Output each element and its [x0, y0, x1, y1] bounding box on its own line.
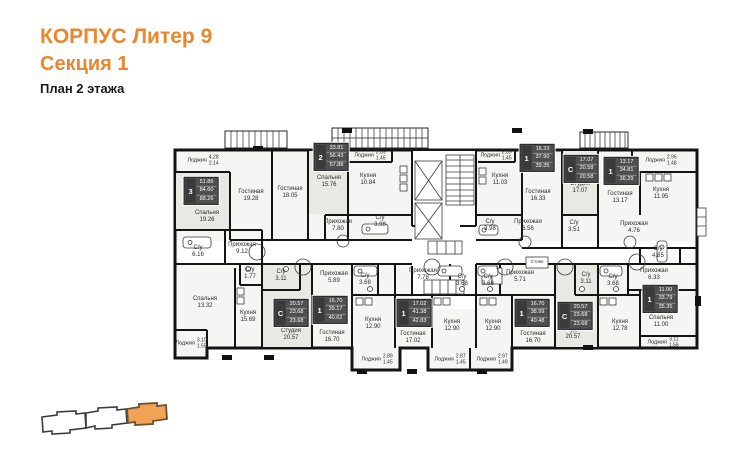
keyplan-section-highlighted	[127, 403, 167, 425]
floor-plan-drawing	[0, 0, 740, 472]
entrance-stairs-icon	[225, 128, 628, 148]
keyplan-section-1	[42, 411, 86, 434]
page: КОРПУС Литер 9 Секция 1 План 2 этажа	[0, 0, 740, 472]
elevator-shaft-icon	[415, 161, 442, 239]
staircase-icon	[446, 155, 474, 205]
keyplan	[42, 403, 167, 434]
keyplan-section-2	[86, 407, 127, 429]
